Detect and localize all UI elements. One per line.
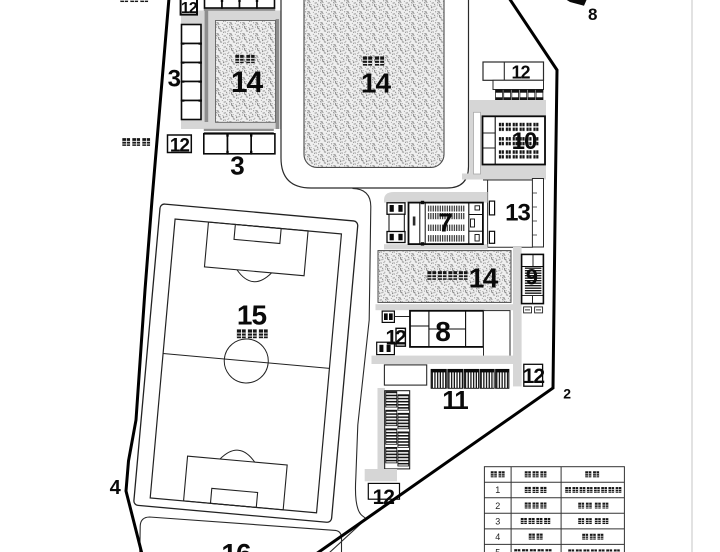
svg-text:14: 14	[361, 68, 392, 99]
svg-text:1: 1	[495, 485, 500, 495]
svg-text:3: 3	[230, 151, 244, 181]
svg-text:12: 12	[170, 136, 190, 157]
svg-text:2: 2	[495, 501, 500, 511]
svg-text:9: 9	[526, 265, 538, 290]
svg-text:3: 3	[168, 66, 181, 93]
svg-text:16: 16	[221, 538, 251, 552]
svg-text:3: 3	[495, 516, 500, 526]
svg-text:12: 12	[181, 0, 198, 17]
svg-text:2: 2	[395, 327, 407, 350]
svg-text:15: 15	[237, 300, 267, 331]
svg-text:7: 7	[438, 208, 452, 238]
svg-text:5: 5	[495, 547, 500, 552]
svg-text:12: 12	[523, 365, 545, 388]
svg-text:10: 10	[512, 128, 537, 155]
svg-text:12: 12	[511, 63, 530, 83]
svg-text:8: 8	[435, 316, 451, 347]
svg-text:14: 14	[469, 263, 499, 294]
svg-text:11: 11	[442, 385, 468, 415]
svg-text:8: 8	[588, 5, 597, 24]
svg-text:4: 4	[495, 532, 500, 542]
svg-text:2: 2	[563, 386, 571, 402]
svg-text:14: 14	[231, 66, 264, 99]
svg-text:13: 13	[505, 200, 530, 227]
svg-text:4: 4	[110, 477, 122, 499]
